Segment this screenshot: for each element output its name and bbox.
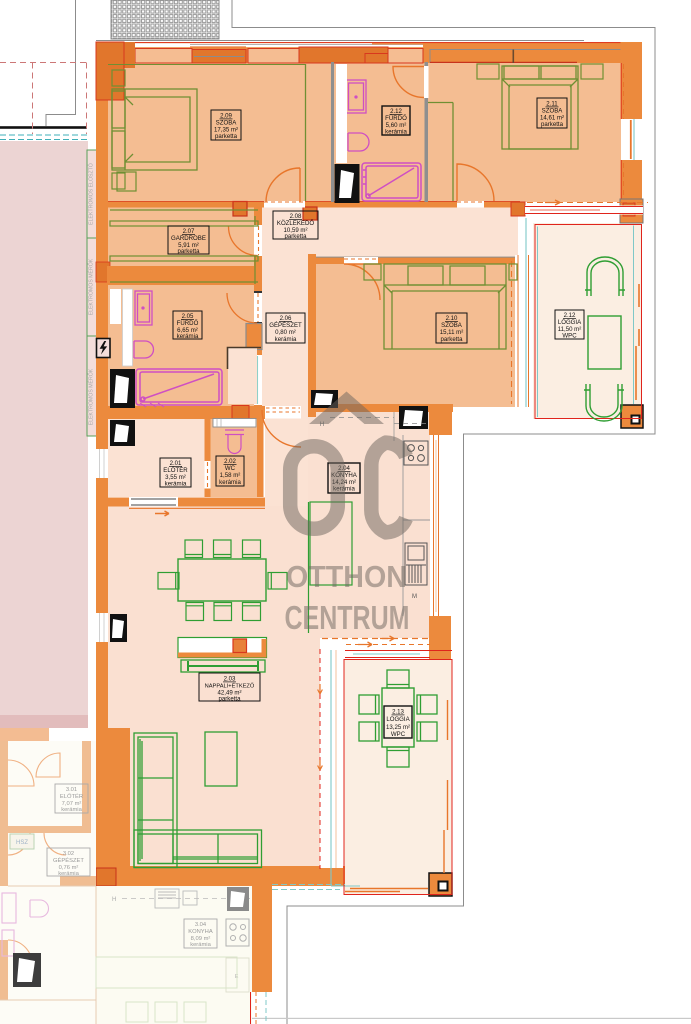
svg-text:ELEKTROMOS MÉRŐK: ELEKTROMOS MÉRŐK	[88, 258, 95, 315]
svg-text:2.08: 2.08	[290, 213, 302, 220]
svg-text:SZOBA: SZOBA	[216, 120, 238, 127]
svg-text:2.09: 2.09	[220, 113, 232, 120]
svg-text:H: H	[112, 897, 116, 903]
svg-text:2.05: 2.05	[182, 313, 194, 320]
svg-text:kerámia: kerámia	[190, 942, 211, 948]
svg-text:13,25 m²: 13,25 m²	[386, 724, 410, 731]
svg-text:parketta: parketta	[284, 233, 307, 240]
svg-text:kerámia: kerámia	[385, 129, 407, 136]
svg-text:ELEKTROMOS MÉRŐK: ELEKTROMOS MÉRŐK	[88, 368, 95, 425]
svg-text:LOGGIA: LOGGIA	[558, 319, 582, 326]
svg-text:HSZ: HSZ	[16, 840, 28, 846]
svg-text:15,11 m²: 15,11 m²	[440, 329, 464, 336]
svg-text:parketta: parketta	[215, 133, 238, 140]
svg-text:parketta: parketta	[218, 696, 241, 703]
svg-text:3.01: 3.01	[66, 787, 77, 793]
svg-text:2.12: 2.12	[390, 108, 402, 115]
svg-text:2.07: 2.07	[183, 228, 195, 235]
svg-text:ELEKTROMOS ELOSZTÓ: ELEKTROMOS ELOSZTÓ	[88, 163, 95, 225]
svg-text:SZOBA: SZOBA	[542, 108, 564, 115]
svg-text:LOGGIA: LOGGIA	[386, 716, 410, 723]
svg-text:3.02: 3.02	[63, 851, 74, 857]
svg-text:parketta: parketta	[177, 248, 200, 255]
svg-text:2.03: 2.03	[224, 676, 236, 683]
svg-text:kerámia: kerámia	[58, 871, 79, 877]
svg-text:kerámia: kerámia	[177, 333, 199, 340]
svg-text:1,58 m²: 1,58 m²	[220, 472, 241, 479]
svg-text:ELŐTÉR: ELŐTÉR	[60, 793, 83, 800]
svg-text:GÉPÉSZET: GÉPÉSZET	[53, 857, 84, 864]
svg-text:2.12: 2.12	[564, 312, 576, 319]
svg-text:WC: WC	[225, 465, 236, 472]
svg-text:0,80 m²: 0,80 m²	[275, 329, 296, 336]
svg-text:parketta: parketta	[440, 336, 463, 343]
svg-text:2.11: 2.11	[546, 101, 558, 108]
svg-text:3.04: 3.04	[195, 922, 207, 928]
svg-text:NAPPALI+ÉTKEZŐ: NAPPALI+ÉTKEZŐ	[205, 683, 255, 690]
svg-text:kerámia: kerámia	[275, 336, 297, 343]
svg-text:GÉPÉSZET: GÉPÉSZET	[269, 322, 302, 329]
svg-text:WPC: WPC	[562, 333, 577, 340]
svg-text:OTTHON: OTTHON	[286, 559, 407, 594]
svg-text:2.06: 2.06	[280, 315, 292, 322]
svg-text:kerámia: kerámia	[61, 807, 82, 813]
svg-text:kerámia: kerámia	[165, 481, 187, 488]
svg-text:GARDROBE: GARDROBE	[171, 235, 206, 242]
svg-text:2.02: 2.02	[224, 458, 236, 465]
svg-text:parketta: parketta	[541, 121, 564, 128]
svg-text:SZOBA: SZOBA	[441, 322, 463, 329]
svg-text:kerámia: kerámia	[219, 479, 241, 486]
svg-text:KÖZLEKEDŐ: KÖZLEKEDŐ	[277, 220, 315, 227]
svg-text:2.13: 2.13	[392, 709, 404, 716]
svg-text:ELŐTÉR: ELŐTÉR	[163, 467, 188, 474]
svg-text:WPC: WPC	[391, 731, 406, 738]
svg-text:2.01: 2.01	[170, 460, 182, 467]
svg-text:2.10: 2.10	[446, 315, 458, 322]
svg-text:M: M	[412, 594, 417, 600]
svg-text:KONYHA: KONYHA	[188, 929, 213, 935]
svg-text:FÜRDŐ: FÜRDŐ	[177, 320, 199, 327]
svg-text:FÜRDŐ: FÜRDŐ	[385, 115, 407, 122]
svg-text:CENTRUM: CENTRUM	[285, 599, 410, 636]
